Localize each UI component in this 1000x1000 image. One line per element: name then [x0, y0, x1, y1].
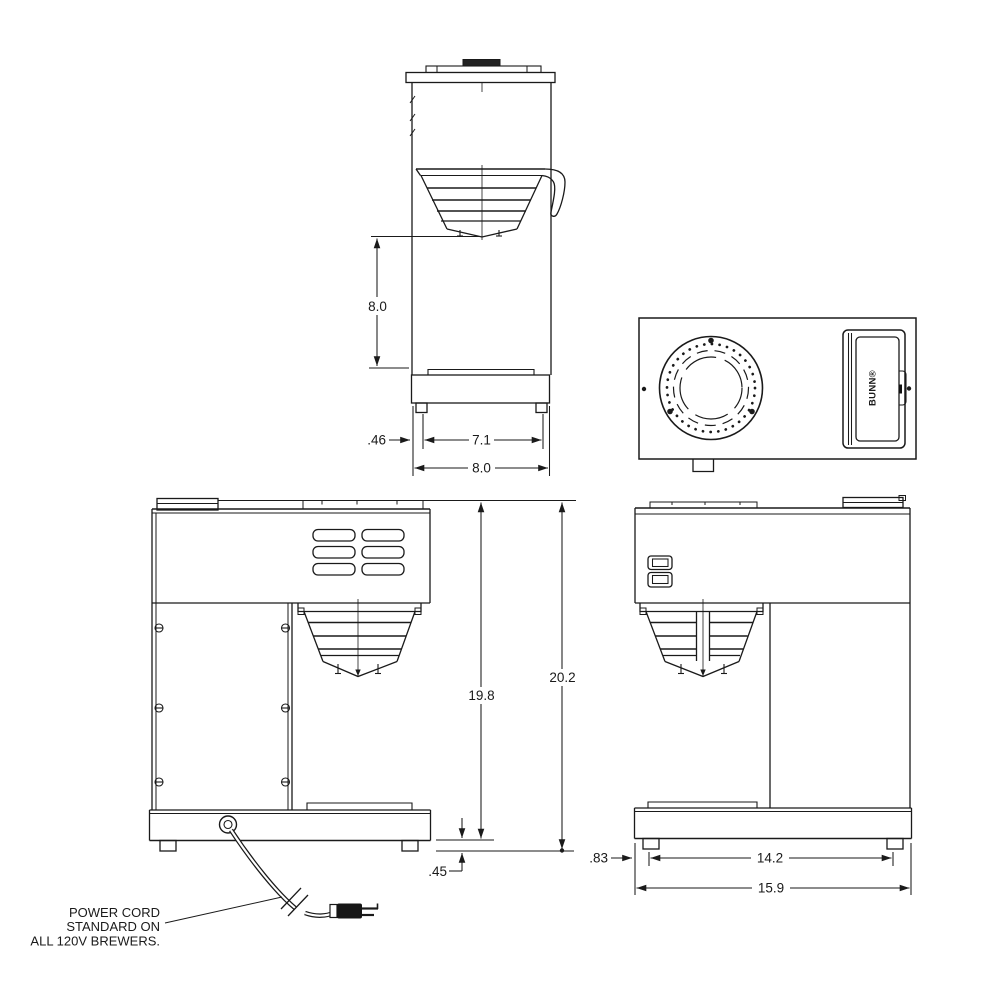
foot [160, 841, 176, 852]
warmer-switches [648, 556, 672, 587]
brew-funnel-rear [640, 599, 763, 677]
lid-tab [843, 496, 906, 508]
power-cord-callout: POWER CORD STANDARD ON ALL 120V BREWERS. [30, 830, 378, 949]
base [412, 375, 550, 403]
top-rear-tab [303, 501, 423, 509]
dim-side-foot-inset: .46 [367, 433, 386, 448]
note-line-3: ALL 120V BREWERS. [30, 934, 160, 949]
funnel-handle [542, 169, 565, 216]
power-cord-note: POWER CORD STANDARD ON ALL 120V BREWERS. [30, 905, 160, 949]
top-view: BUNN® [639, 318, 916, 472]
latch-tick [899, 385, 902, 394]
dim-side-foot-span: 7.1 [472, 433, 491, 448]
rivet-dot [907, 386, 911, 390]
brew-funnel-front [298, 599, 421, 677]
foot [643, 839, 659, 850]
dim-side-depth: 8.0 [472, 461, 491, 476]
side-view-dimensions: 8.0 .46 7.1 8.0 [364, 237, 550, 477]
funnel-handle-tab [693, 459, 714, 472]
dim-front-foot-height: .45 [428, 864, 447, 879]
lid-handle [463, 60, 500, 67]
plug-collar [330, 905, 337, 918]
dim-side-funnel-height: 8.0 [368, 299, 387, 314]
dim-front-body-height: 19.8 [468, 688, 494, 703]
brand-logo: BUNN® [868, 370, 879, 406]
dim-front-overall-height: 20.2 [549, 670, 575, 685]
rear-view [635, 496, 912, 850]
vent-slots [313, 530, 404, 576]
rivet-dot [642, 387, 646, 391]
foot [536, 403, 547, 413]
drip-tray [307, 803, 412, 810]
panel-screws [155, 624, 290, 786]
note-leader-line [165, 897, 282, 923]
foot [416, 403, 427, 413]
plug-body [337, 904, 362, 919]
lid-rim [406, 73, 555, 83]
drip-tray [648, 802, 757, 808]
lid-upper [426, 66, 541, 73]
technical-drawing: 8.0 .46 7.1 8.0 [0, 0, 1000, 1000]
tank-lid: BUNN® [843, 330, 906, 448]
brew-funnel-side [416, 165, 565, 240]
note-line-2: STANDARD ON [66, 919, 160, 934]
dim-rear-foot-span: 14.2 [757, 851, 783, 866]
drip-tray [428, 370, 534, 376]
spec-sheet: 8.0 .46 7.1 8.0 [0, 0, 1000, 1000]
power-cord [231, 830, 295, 908]
front-view [150, 499, 431, 852]
note-line-1: POWER CORD [69, 905, 160, 920]
warmer-plate [660, 337, 763, 440]
dim-rear-foot-inset: .83 [589, 851, 608, 866]
rear-view-dimensions: .83 14.2 15.9 [589, 843, 911, 897]
foot [887, 839, 903, 850]
top-rail-tab [650, 502, 757, 508]
foot [402, 841, 418, 852]
dim-rear-overall-width: 15.9 [758, 881, 784, 896]
